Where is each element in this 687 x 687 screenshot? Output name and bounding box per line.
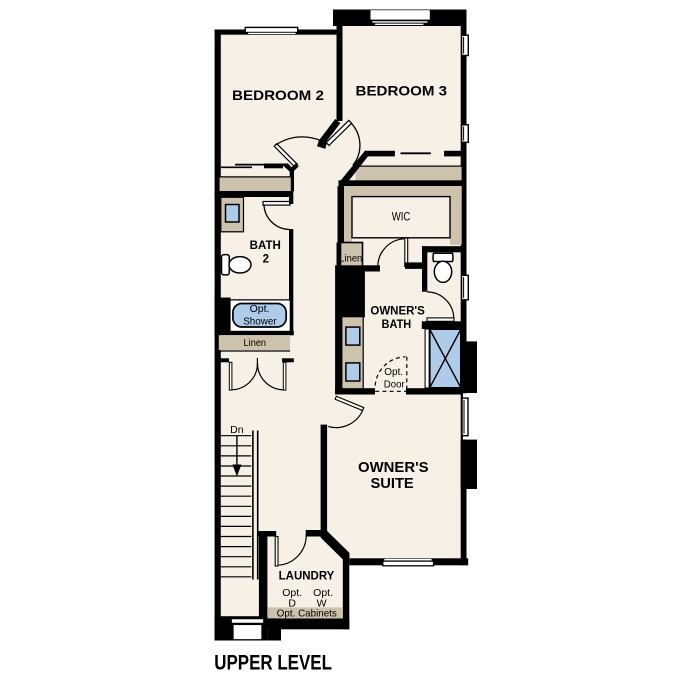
svg-text:D: D [288,598,296,610]
svg-text:OWNER'S: OWNER'S [358,459,429,476]
svg-text:BEDROOM 2: BEDROOM 2 [232,87,324,103]
svg-text:W: W [317,598,327,610]
svg-text:Linen: Linen [339,252,362,264]
svg-text:Door: Door [384,379,406,390]
svg-text:WIC: WIC [392,212,411,224]
svg-text:Opt.: Opt. [250,303,270,315]
svg-text:2: 2 [263,254,269,266]
svg-text:BATH: BATH [382,317,412,331]
svg-text:LAUNDRY: LAUNDRY [279,569,335,583]
svg-text:Opt.: Opt. [384,367,403,378]
svg-text:UPPER LEVEL: UPPER LEVEL [214,652,332,675]
svg-text:BEDROOM 3: BEDROOM 3 [356,83,448,99]
svg-text:OWNER'S: OWNER'S [370,304,424,318]
svg-text:Shower: Shower [243,316,277,328]
svg-text:Dn: Dn [230,424,244,436]
svg-text:BATH: BATH [250,240,281,252]
svg-text:Linen: Linen [244,337,267,349]
svg-text:Opt. Cabinets: Opt. Cabinets [277,608,337,620]
svg-text:SUITE: SUITE [370,475,413,492]
